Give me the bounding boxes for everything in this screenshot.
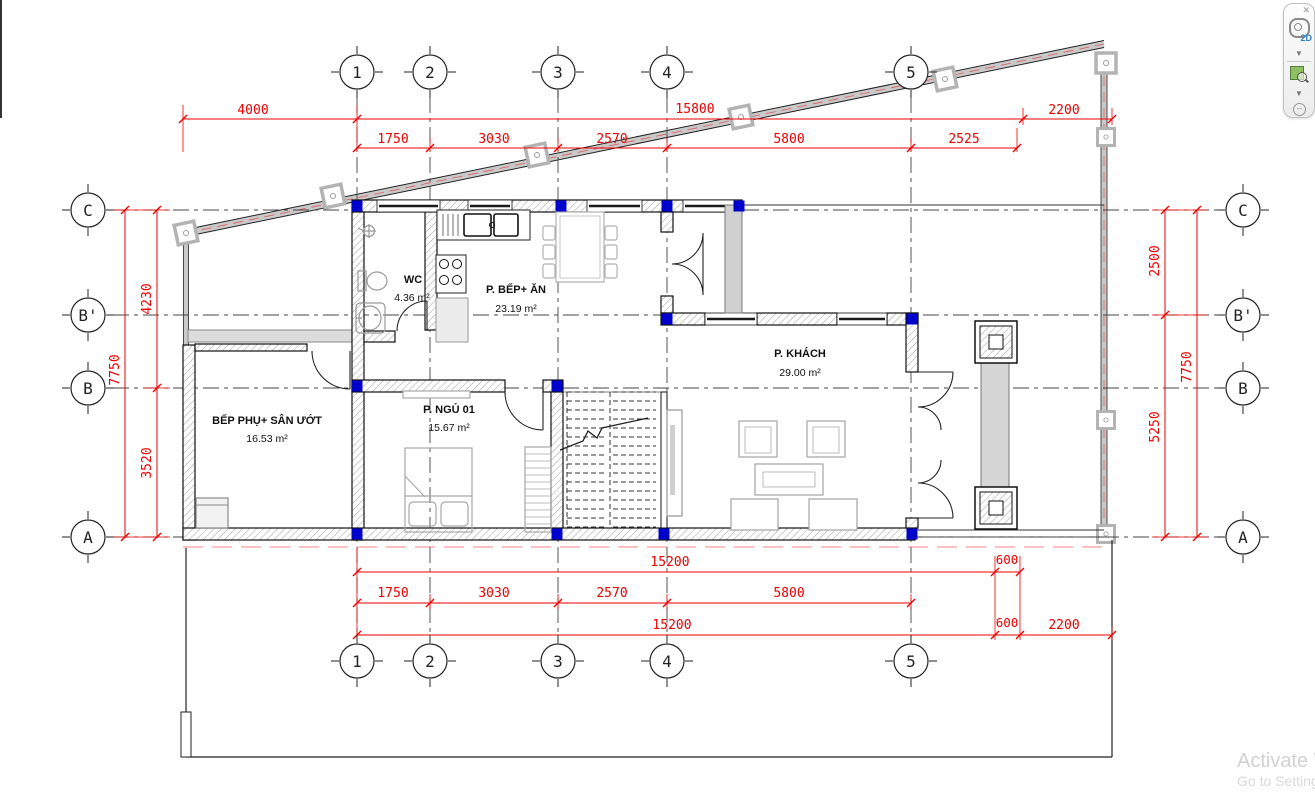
room-bedroom-name: P. NGỦ 01 bbox=[423, 403, 475, 416]
dim-600-c: 600 bbox=[996, 615, 1019, 630]
grid-label-4-top: 4 bbox=[662, 63, 672, 82]
room-living-name: P. KHÁCH bbox=[774, 347, 826, 360]
dim-2500: 2500 bbox=[1148, 245, 1163, 276]
room-kitchen-name: P. BẾP+ ĂN bbox=[486, 283, 546, 296]
grid-label-Bp-left: B' bbox=[78, 306, 97, 325]
grid-label-2-bottom: 2 bbox=[425, 652, 435, 671]
wardrobe bbox=[525, 447, 551, 532]
grid-bubbles: 1 2 3 4 5 1 2 3 4 5 C B' B A C B' B A bbox=[62, 46, 1269, 687]
room-kitchen-area: 23.19 m² bbox=[495, 303, 537, 315]
living-furniture bbox=[667, 410, 857, 530]
fence-posts bbox=[174, 53, 1116, 543]
entry-pier bbox=[725, 205, 742, 313]
grid-label-Bp-right: B' bbox=[1233, 306, 1252, 325]
room-bedroom-area: 15.67 m² bbox=[428, 422, 470, 434]
dimension-texts: 4000 15800 2200 1750 3030 2570 5800 2525… bbox=[108, 102, 1195, 633]
wheel-2d-label: 2D bbox=[1300, 33, 1312, 43]
steering-wheel-2d-button[interactable]: 2D bbox=[1288, 17, 1310, 43]
grid-label-5-top: 5 bbox=[906, 63, 916, 82]
grid-label-A-right: A bbox=[1238, 528, 1248, 547]
dim-2200-top: 2200 bbox=[1048, 103, 1079, 118]
back-kitchen-appliance bbox=[196, 498, 228, 528]
dim-1750-top: 1750 bbox=[377, 132, 408, 147]
canopy-band bbox=[188, 330, 352, 342]
dim-7750-right: 7750 bbox=[1180, 351, 1195, 382]
grid-label-3-bottom: 3 bbox=[553, 652, 563, 671]
grid-label-4-bottom: 4 bbox=[662, 652, 672, 671]
dim-2570-b: 2570 bbox=[596, 586, 627, 601]
grid-label-C-right: C bbox=[1238, 201, 1248, 220]
window-edge-line bbox=[0, 0, 2, 118]
close-icon[interactable]: ✕ bbox=[1302, 5, 1310, 16]
kitchen-fixtures bbox=[436, 210, 530, 342]
dim-2200-c: 2200 bbox=[1048, 618, 1079, 633]
dim-5800-b: 5800 bbox=[773, 586, 804, 601]
dim-4000: 4000 bbox=[237, 103, 268, 118]
dim-1750-b: 1750 bbox=[377, 586, 408, 601]
gate-post bbox=[181, 712, 191, 757]
dim-5250: 5250 bbox=[1148, 411, 1163, 442]
navbar-divider bbox=[1287, 61, 1311, 62]
grid-label-B-right: B bbox=[1238, 379, 1248, 398]
room-living-area: 29.00 m² bbox=[779, 367, 821, 379]
dim-2570-top: 2570 bbox=[596, 132, 627, 147]
dim-3030-top: 3030 bbox=[478, 132, 509, 147]
chevron-down-icon[interactable]: ▼ bbox=[1284, 50, 1314, 58]
kitchen-counter bbox=[436, 298, 468, 342]
grid-label-B-left: B bbox=[83, 379, 93, 398]
dim-2525: 2525 bbox=[948, 132, 979, 147]
grid-label-3-top: 3 bbox=[553, 63, 563, 82]
grid-label-A-left: A bbox=[83, 528, 93, 547]
room-back-kitchen-area: 16.53 m² bbox=[246, 433, 288, 445]
zoom-region-button[interactable] bbox=[1290, 66, 1308, 84]
watermark-line2: Go to Setting bbox=[1237, 773, 1315, 789]
activate-windows-watermark: Activate W Go to Setting bbox=[1237, 750, 1315, 789]
chevron-down-icon[interactable]: ▼ bbox=[1284, 90, 1314, 98]
navigation-bar: ✕ 2D ▼ ▼ – bbox=[1283, 3, 1315, 118]
grid-label-1-top: 1 bbox=[352, 63, 362, 82]
front-yard-boundary bbox=[186, 540, 1112, 757]
dim-15200-c: 15200 bbox=[652, 618, 691, 633]
dim-3030-b: 3030 bbox=[478, 586, 509, 601]
stairs bbox=[560, 392, 656, 527]
dim-4230: 4230 bbox=[140, 283, 155, 314]
dining-set bbox=[543, 212, 617, 282]
magnifier-icon bbox=[1297, 72, 1307, 82]
dim-15200-a: 15200 bbox=[650, 555, 689, 570]
bed bbox=[405, 448, 472, 532]
watermark-line1: Activate W bbox=[1237, 750, 1315, 773]
dim-5800-top: 5800 bbox=[773, 132, 804, 147]
room-wc-area: 4.36 m² bbox=[394, 292, 430, 304]
dim-3520: 3520 bbox=[140, 447, 155, 478]
dim-600-a: 600 bbox=[996, 552, 1019, 567]
grid-label-2-top: 2 bbox=[425, 63, 435, 82]
floor-plan-canvas: 4000 15800 2200 1750 3030 2570 5800 2525… bbox=[0, 0, 1315, 802]
grid-label-5-bottom: 5 bbox=[906, 652, 916, 671]
stair-wall bbox=[661, 392, 667, 528]
grid-label-C-left: C bbox=[83, 201, 93, 220]
dim-15800: 15800 bbox=[675, 102, 714, 117]
minus-icon[interactable]: – bbox=[1293, 103, 1306, 116]
floor-plan-svg: 4000 15800 2200 1750 3030 2570 5800 2525… bbox=[0, 0, 1315, 802]
room-back-kitchen-name: BẾP PHỤ+ SÂN ƯỚT bbox=[212, 414, 322, 427]
dim-7750-left: 7750 bbox=[108, 354, 123, 385]
room-wc-name: WC bbox=[404, 274, 422, 286]
grid-label-1-bottom: 1 bbox=[352, 652, 362, 671]
